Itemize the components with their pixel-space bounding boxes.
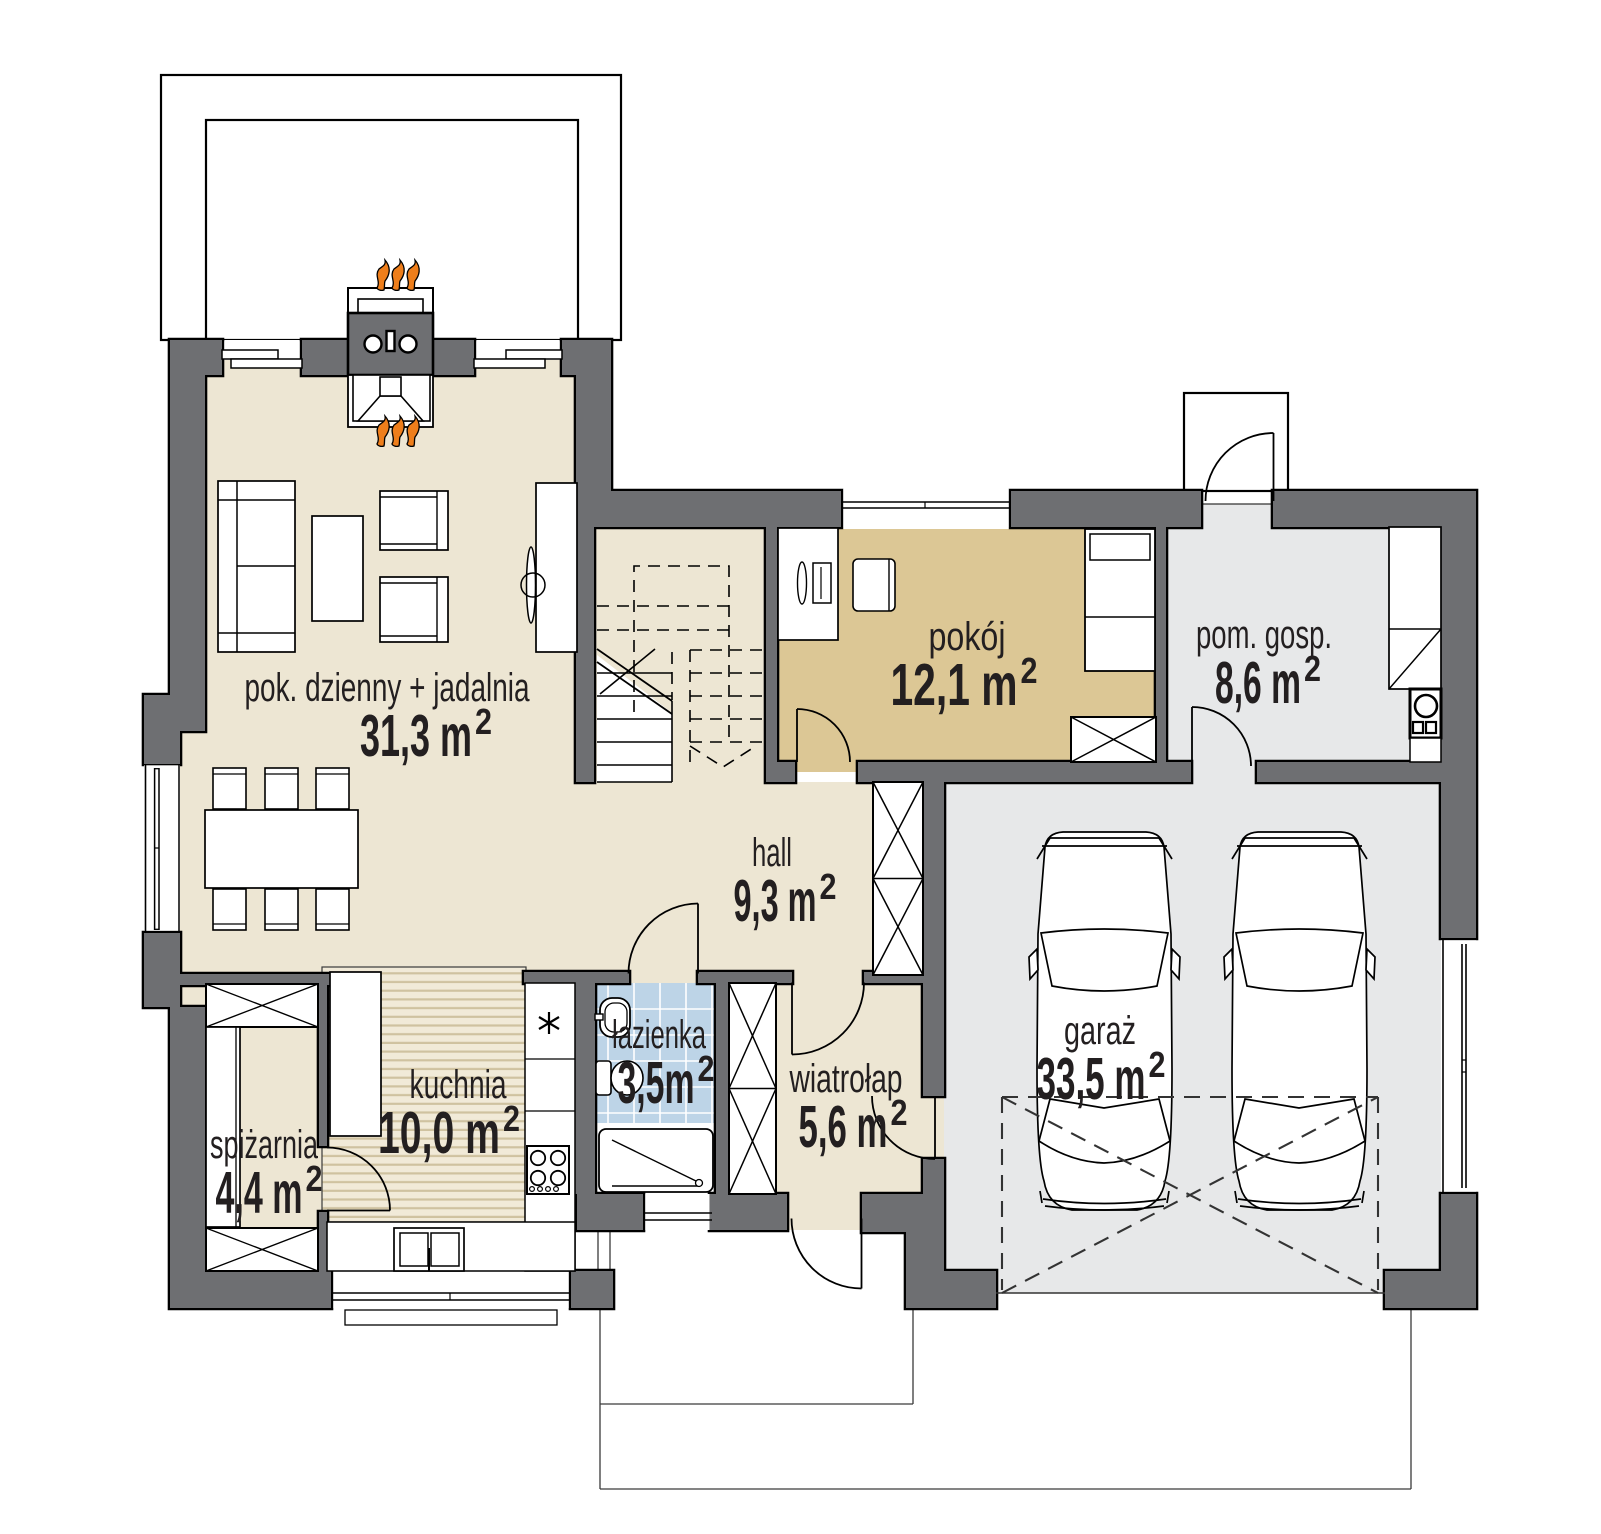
- svg-text:3,5m: 3,5m: [618, 1050, 695, 1116]
- svg-text:2: 2: [1021, 650, 1038, 691]
- svg-text:2: 2: [306, 1158, 323, 1199]
- svg-text:8,6 m: 8,6 m: [1215, 650, 1301, 716]
- svg-text:2: 2: [475, 701, 492, 742]
- svg-text:31,3 m: 31,3 m: [360, 703, 472, 769]
- svg-text:9,3 m: 9,3 m: [734, 868, 817, 934]
- svg-text:12,1 m: 12,1 m: [891, 652, 1018, 718]
- svg-text:5,6 m: 5,6 m: [799, 1094, 888, 1160]
- svg-text:2: 2: [820, 866, 837, 907]
- svg-text:33,5 m: 33,5 m: [1037, 1046, 1146, 1112]
- svg-text:2: 2: [503, 1098, 520, 1139]
- svg-text:2: 2: [1149, 1044, 1166, 1085]
- svg-text:2: 2: [1304, 648, 1321, 689]
- svg-text:2: 2: [698, 1048, 715, 1089]
- svg-text:10,0 m: 10,0 m: [378, 1100, 500, 1166]
- svg-text:2: 2: [891, 1092, 908, 1133]
- svg-text:4,4 m: 4,4 m: [216, 1160, 303, 1226]
